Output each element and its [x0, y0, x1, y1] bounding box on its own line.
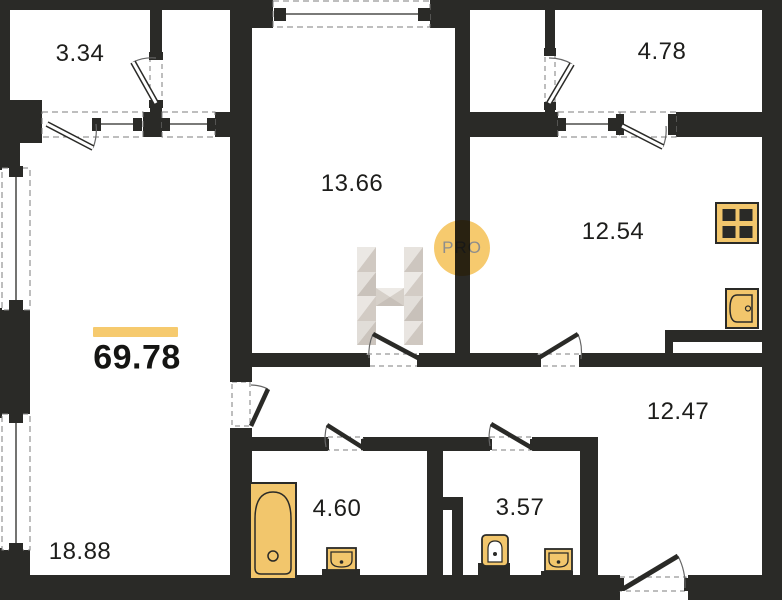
bathtub-icon	[250, 483, 296, 579]
floorplan: PRO 3.34 4.78 13.66 12.54 12.47 4.60 3.5…	[0, 0, 782, 600]
pro-badge: PRO	[434, 220, 490, 276]
window	[273, 1, 430, 27]
door	[230, 372, 268, 438]
door	[133, 52, 163, 108]
window	[2, 166, 30, 311]
window	[162, 112, 215, 137]
balcony-door	[616, 112, 676, 147]
door	[362, 334, 425, 367]
floorplan-drawing	[0, 0, 782, 600]
door	[484, 424, 538, 450]
pro-badge-label: PRO	[442, 238, 482, 258]
window	[558, 112, 620, 137]
walls-layer	[0, 0, 782, 600]
kitchen-sink-icon	[726, 289, 758, 328]
balcony-door	[42, 112, 143, 148]
sink-icon	[541, 549, 573, 579]
door	[533, 334, 587, 367]
door	[544, 48, 572, 110]
entrance-door	[616, 556, 692, 591]
toilet-icon	[478, 535, 510, 577]
stove-icon	[716, 203, 758, 243]
window	[2, 412, 30, 554]
sink-icon	[322, 548, 360, 578]
